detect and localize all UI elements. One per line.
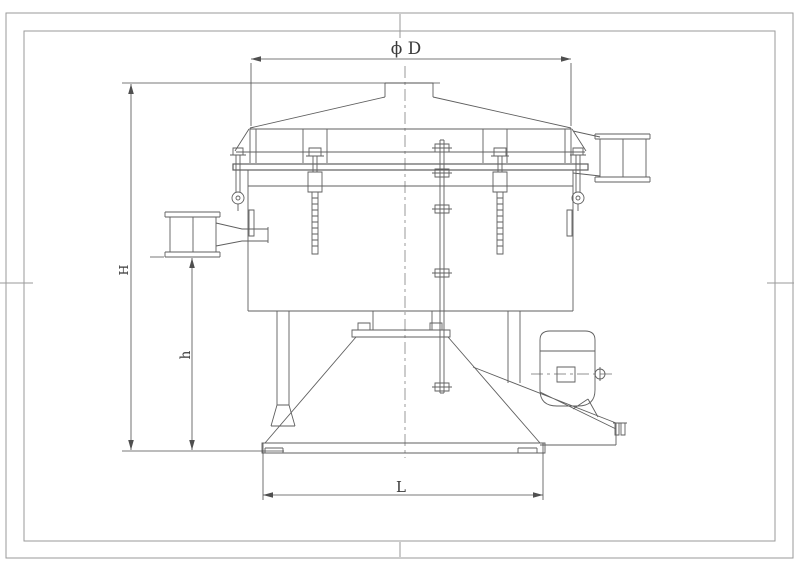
sieve-lid bbox=[235, 83, 586, 163]
drawing-sheet: ϕ D H h L bbox=[0, 0, 800, 566]
sheet-frame-inner bbox=[24, 31, 775, 541]
vibrator-flange bbox=[352, 311, 450, 337]
base-cone bbox=[265, 337, 540, 443]
sheet-frame bbox=[0, 13, 794, 558]
dimensions bbox=[122, 59, 571, 500]
label-outlet-height: h bbox=[178, 350, 194, 359]
dim-diameter-line bbox=[251, 59, 571, 126]
label-base-width: L bbox=[396, 478, 406, 496]
sheet-frame-outer bbox=[6, 13, 793, 558]
clamp-left-edge-bolt bbox=[230, 148, 246, 211]
tie-rod bbox=[440, 140, 444, 393]
rim-flange bbox=[233, 164, 588, 170]
machine bbox=[165, 83, 650, 453]
outlet-left bbox=[165, 212, 268, 257]
clamp-right-edge-bolt bbox=[570, 148, 586, 211]
clamp-left-edge bbox=[230, 148, 246, 211]
frame-center-ticks bbox=[0, 14, 794, 557]
clamp-right-edge-eye bbox=[572, 192, 584, 204]
tie-rod-bolts bbox=[432, 144, 452, 391]
clamp-left-edge-eye bbox=[232, 192, 244, 204]
body-drum bbox=[248, 170, 573, 311]
clamp-left-edge-pin bbox=[236, 196, 240, 200]
outlet-right bbox=[573, 131, 650, 182]
label-total-height: H bbox=[116, 264, 131, 275]
support-leg-right bbox=[508, 311, 520, 383]
dim-total-height-line bbox=[122, 83, 440, 451]
support-leg-left bbox=[271, 311, 295, 426]
clamp-right-edge-pin bbox=[576, 196, 580, 200]
base-plate bbox=[262, 443, 545, 453]
motor-bracket bbox=[473, 367, 627, 445]
centerlines bbox=[405, 66, 613, 458]
clamp-right-edge bbox=[570, 148, 586, 211]
label-diameter: ϕ D bbox=[391, 39, 422, 59]
dim-arrowheads bbox=[128, 56, 571, 498]
